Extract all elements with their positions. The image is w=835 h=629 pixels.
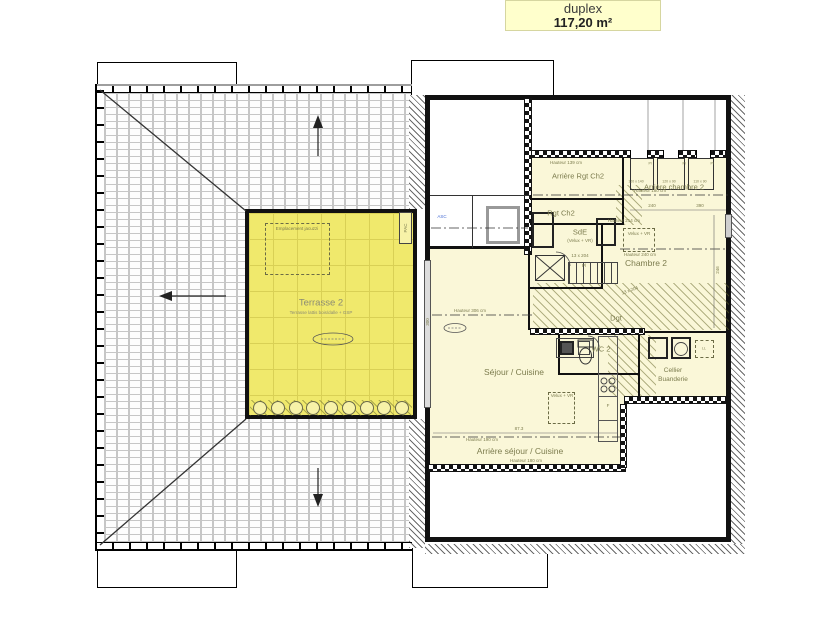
- roof-edge-left: [95, 84, 104, 551]
- window-dim: 120 x 140: [628, 180, 643, 184]
- kitchen-divider: [598, 374, 618, 375]
- eave-strip-upper: [409, 95, 425, 209]
- wall: [530, 198, 624, 200]
- roof-edge-top: [95, 84, 412, 93]
- dimension-label: 300: [426, 318, 431, 326]
- closet-label: Pl: [710, 162, 713, 166]
- room-label-wc2: WC 2: [592, 345, 611, 353]
- staircase: [568, 262, 618, 284]
- velux-note: Velux + VR: [551, 394, 573, 399]
- appliance-label: F: [607, 404, 610, 409]
- kitchen-divider: [598, 396, 618, 397]
- asc-label: ASC: [437, 215, 446, 220]
- floor-plan-canvas: Arrière Rgt Ch2 Hauteur 139 cm Arrière c…: [0, 0, 835, 629]
- dormer-outline-bottom-middle: [412, 548, 548, 588]
- dimension-label: 246: [716, 266, 721, 274]
- closet-label: Pl: [582, 264, 586, 269]
- wall: [430, 246, 530, 249]
- skylight-frame: [486, 206, 520, 244]
- eave-strip-bottom: [425, 544, 745, 554]
- velux-note: Velux + VR: [628, 232, 650, 237]
- kitchen-divider: [598, 420, 618, 421]
- roof-edge-bottom: [95, 542, 412, 551]
- planter-pot-icon: [324, 401, 338, 415]
- cellier-sink: [648, 337, 668, 359]
- washing-machine: [671, 337, 691, 359]
- height-note: Hauteur 180 cm: [510, 459, 542, 464]
- height-note: Hauteur 306 cm: [454, 309, 486, 314]
- room-label-chambre2: Chambre 2: [625, 259, 667, 268]
- window-dim: 120 x 90: [662, 180, 675, 184]
- room-label-cellier: Cellier: [664, 368, 682, 375]
- pac-label: PAC: [404, 224, 409, 233]
- stair-note: 13 x 204: [571, 254, 588, 259]
- planter-pot-icon: [306, 401, 320, 415]
- window-gap: [696, 150, 711, 158]
- wall-checker-vertical: [524, 98, 532, 255]
- bay-window: [424, 260, 431, 408]
- eave-strip-right: [731, 95, 745, 553]
- plan-area: 117,20 m²: [506, 16, 660, 30]
- height-note: Hauteur 190 cm: [466, 438, 498, 443]
- closet-label: Pl: [648, 162, 651, 166]
- room-label-arriere-rgt-ch2: Arrière Rgt Ch2: [552, 172, 604, 180]
- dimension-label: 390: [696, 204, 704, 209]
- room-label-dgt: Dgt: [610, 314, 622, 322]
- planter-pot-icon: [395, 401, 409, 415]
- height-note: Hauteur 139 cm: [550, 161, 582, 166]
- wall: [622, 158, 624, 225]
- eave-strip-lower: [409, 419, 425, 548]
- dimension-label: 240: [648, 204, 656, 209]
- wall-checker-sejour-bottom: [428, 464, 626, 472]
- window: [725, 214, 732, 238]
- stair-shaft: [535, 255, 565, 281]
- terrace-planter: [250, 400, 412, 416]
- room-label-sde: SdE: [573, 228, 587, 236]
- wall: [645, 331, 726, 333]
- sink-bowl: [560, 341, 574, 355]
- plan-title: duplex: [506, 2, 660, 16]
- room-label-terrasse2: Terrasse 2: [299, 298, 343, 308]
- room-label-sejour: Séjour / Cuisine: [484, 368, 544, 377]
- wall-checker-dgt-wc: [530, 328, 645, 335]
- wall: [530, 287, 603, 289]
- terrace-subtitle: Terrasse lattis bois/dalle + GSP: [290, 311, 353, 316]
- planter-pot-icon: [360, 401, 374, 415]
- height-note: Hauteur 240 cm: [624, 253, 656, 258]
- appliance-label: LL: [702, 347, 706, 351]
- room-label-rgt-ch2: Rgt Ch2: [547, 209, 575, 217]
- plan-title-box: duplex 117,20 m²: [505, 0, 661, 31]
- sink-bowl: [578, 341, 590, 355]
- planter-pot-icon: [342, 401, 356, 415]
- velux-note: (Velux + VR): [567, 239, 592, 244]
- planter-pot-icon: [253, 401, 267, 415]
- wall: [472, 195, 473, 248]
- height-note: Hauteur 214 cm: [608, 219, 640, 224]
- dormer-outline-top-middle: [411, 60, 554, 96]
- dimension-label: 87.3: [515, 427, 524, 432]
- window-gap: [630, 150, 648, 158]
- room-label-buanderie: Buanderie: [658, 377, 688, 384]
- window-gap: [663, 150, 679, 158]
- wall: [430, 195, 530, 196]
- planter-pot-icon: [289, 401, 303, 415]
- wall-checker-right-return: [620, 404, 627, 468]
- window-dim: 110 x 90: [693, 180, 706, 184]
- wall: [638, 335, 640, 398]
- shower: [532, 212, 554, 248]
- height-note: Hauteur 180 cm: [634, 189, 666, 194]
- planter-pot-icon: [377, 401, 391, 415]
- closet-label: Pl: [682, 162, 685, 166]
- jacuzzi-label: Emplacement jacuzzi: [276, 227, 319, 232]
- wall: [528, 248, 530, 330]
- dormer-outline-top-left: [97, 62, 237, 85]
- dormer-outline-bottom-left: [97, 551, 237, 588]
- room-label-arriere-sejour: Arrière séjour / Cuisine: [477, 447, 563, 456]
- planter-pot-icon: [271, 401, 285, 415]
